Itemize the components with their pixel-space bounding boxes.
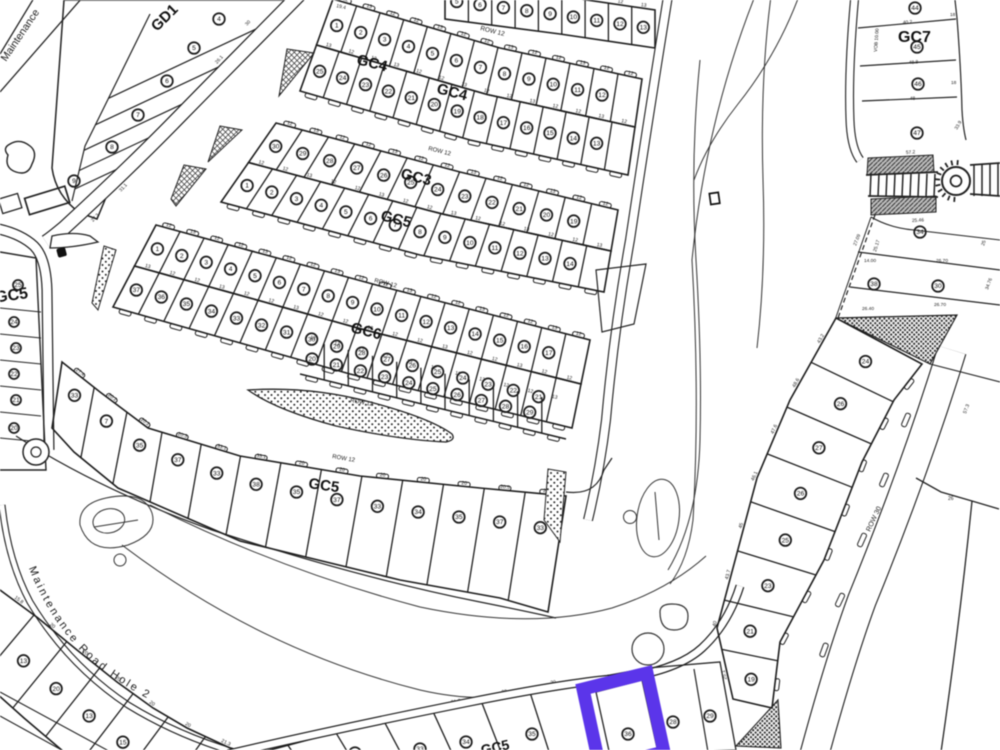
svg-text:1: 1 <box>156 246 160 253</box>
svg-text:2: 2 <box>270 189 274 196</box>
svg-text:48: 48 <box>910 96 916 102</box>
svg-text:5: 5 <box>344 209 348 216</box>
svg-text:24: 24 <box>10 319 18 326</box>
svg-text:20: 20 <box>52 686 60 693</box>
svg-text:23: 23 <box>12 345 20 352</box>
svg-text:19: 19 <box>570 218 578 225</box>
svg-text:27: 27 <box>478 398 486 405</box>
svg-text:23: 23 <box>461 193 469 200</box>
svg-text:31: 31 <box>283 329 291 336</box>
svg-text:8: 8 <box>418 229 422 236</box>
svg-text:18: 18 <box>476 115 484 122</box>
svg-text:33: 33 <box>213 470 221 477</box>
svg-text:34: 34 <box>916 229 924 236</box>
svg-text:7: 7 <box>479 65 483 72</box>
svg-text:5: 5 <box>192 45 196 52</box>
svg-text:57.2: 57.2 <box>906 149 916 156</box>
svg-text:21: 21 <box>746 628 754 635</box>
svg-text:7: 7 <box>105 418 109 425</box>
svg-text:4: 4 <box>319 203 323 210</box>
svg-text:25: 25 <box>14 282 22 289</box>
svg-text:9: 9 <box>548 11 552 18</box>
svg-text:26: 26 <box>948 496 954 502</box>
svg-text:24: 24 <box>862 359 870 366</box>
svg-text:28: 28 <box>502 404 510 411</box>
svg-text:12: 12 <box>617 0 624 5</box>
svg-text:40.2: 40.2 <box>903 19 913 26</box>
svg-text:15: 15 <box>119 739 127 746</box>
svg-text:36: 36 <box>624 731 632 738</box>
svg-text:6: 6 <box>165 78 169 85</box>
svg-text:12: 12 <box>422 319 430 326</box>
svg-text:19: 19 <box>453 108 461 115</box>
svg-text:1: 1 <box>245 183 249 190</box>
svg-text:7: 7 <box>136 112 140 119</box>
svg-text:23: 23 <box>362 82 370 89</box>
svg-text:8: 8 <box>503 71 507 78</box>
svg-text:4: 4 <box>229 266 233 273</box>
svg-text:11: 11 <box>398 313 405 320</box>
svg-text:48.8: 48.8 <box>909 59 919 66</box>
svg-text:13: 13 <box>641 2 648 9</box>
svg-text:22: 22 <box>488 200 496 207</box>
svg-text:26: 26 <box>380 172 388 179</box>
svg-text:2: 2 <box>180 253 184 260</box>
svg-text:34: 34 <box>462 739 470 746</box>
svg-text:10: 10 <box>570 14 578 21</box>
svg-text:38: 38 <box>252 482 260 489</box>
svg-text:22: 22 <box>357 368 365 375</box>
svg-text:37: 37 <box>333 497 341 504</box>
svg-text:GC7: GC7 <box>898 29 931 46</box>
svg-text:4: 4 <box>407 44 411 51</box>
svg-text:9: 9 <box>527 76 531 83</box>
svg-text:6: 6 <box>369 216 373 223</box>
svg-text:27: 27 <box>815 445 823 452</box>
svg-text:14: 14 <box>471 331 479 338</box>
svg-text:11: 11 <box>491 245 498 252</box>
svg-text:12: 12 <box>516 250 524 257</box>
svg-text:26.70: 26.70 <box>934 302 946 308</box>
svg-text:1: 1 <box>335 23 339 30</box>
svg-text:44: 44 <box>911 5 919 12</box>
svg-text:32: 32 <box>258 322 266 329</box>
svg-text:35: 35 <box>183 301 191 308</box>
svg-text:16: 16 <box>520 344 528 351</box>
svg-text:16: 16 <box>523 125 531 132</box>
svg-text:20: 20 <box>420 476 426 483</box>
svg-text:11: 11 <box>593 18 600 25</box>
svg-text:23: 23 <box>381 374 389 381</box>
svg-text:20: 20 <box>308 356 316 363</box>
svg-text:29: 29 <box>299 151 307 158</box>
svg-text:25: 25 <box>316 69 324 76</box>
svg-text:15: 15 <box>546 130 554 137</box>
svg-text:20: 20 <box>461 480 467 487</box>
svg-text:14: 14 <box>570 135 578 142</box>
svg-text:8: 8 <box>326 293 330 300</box>
svg-text:30: 30 <box>934 283 942 290</box>
svg-text:15: 15 <box>496 337 504 344</box>
svg-text:26: 26 <box>797 491 805 498</box>
svg-text:33: 33 <box>233 315 241 322</box>
svg-text:2: 2 <box>359 30 363 37</box>
svg-text:38: 38 <box>870 281 878 288</box>
svg-text:35: 35 <box>528 731 536 738</box>
svg-text:20: 20 <box>431 102 439 109</box>
svg-text:7: 7 <box>502 5 506 12</box>
svg-text:21: 21 <box>12 397 20 404</box>
svg-text:26: 26 <box>837 401 845 408</box>
svg-text:10: 10 <box>466 240 474 247</box>
svg-text:28: 28 <box>669 719 677 726</box>
svg-text:3: 3 <box>295 196 299 203</box>
svg-text:33: 33 <box>416 746 424 750</box>
svg-text:37: 37 <box>133 287 141 294</box>
svg-text:3: 3 <box>383 37 387 44</box>
svg-text:24: 24 <box>405 380 413 387</box>
svg-text:24: 24 <box>339 75 347 82</box>
svg-text:22: 22 <box>510 388 518 395</box>
svg-text:13: 13 <box>541 256 549 263</box>
svg-text:12: 12 <box>616 21 624 28</box>
svg-text:23: 23 <box>764 583 772 590</box>
svg-text:37: 37 <box>496 519 504 526</box>
svg-text:23: 23 <box>484 381 492 388</box>
svg-text:28: 28 <box>326 158 334 165</box>
svg-text:9: 9 <box>351 300 355 307</box>
svg-text:18: 18 <box>950 12 956 18</box>
svg-text:5: 5 <box>431 51 435 58</box>
svg-text:25: 25 <box>429 386 437 393</box>
svg-text:3: 3 <box>204 260 208 267</box>
svg-text:21: 21 <box>333 362 341 369</box>
svg-text:14.00: 14.00 <box>864 258 876 264</box>
svg-text:13: 13 <box>85 713 93 720</box>
svg-text:5: 5 <box>253 273 257 280</box>
svg-text:29: 29 <box>706 713 714 720</box>
svg-text:6: 6 <box>455 58 459 65</box>
svg-text:13: 13 <box>447 325 455 332</box>
svg-text:10: 10 <box>373 306 381 313</box>
svg-text:35: 35 <box>455 514 463 521</box>
svg-text:34: 34 <box>208 308 216 315</box>
svg-text:5: 5 <box>455 0 459 6</box>
svg-text:21: 21 <box>408 95 416 102</box>
svg-text:6: 6 <box>278 280 282 287</box>
svg-text:11: 11 <box>574 87 581 94</box>
svg-text:13: 13 <box>593 141 601 148</box>
svg-text:47: 47 <box>913 130 921 137</box>
svg-text:13: 13 <box>640 25 648 32</box>
svg-text:33: 33 <box>71 393 79 400</box>
svg-text:35: 35 <box>293 489 301 496</box>
svg-text:29: 29 <box>526 409 534 416</box>
svg-text:26: 26 <box>453 392 461 399</box>
svg-text:7: 7 <box>302 286 306 293</box>
svg-text:20.5: 20.5 <box>500 484 510 491</box>
svg-text:30: 30 <box>272 144 280 151</box>
svg-text:22: 22 <box>10 371 18 378</box>
svg-text:20: 20 <box>10 425 18 432</box>
svg-text:20: 20 <box>543 212 551 219</box>
svg-text:21: 21 <box>515 206 523 213</box>
svg-text:13: 13 <box>20 658 28 665</box>
svg-text:22: 22 <box>385 88 393 95</box>
svg-text:14: 14 <box>566 261 574 268</box>
svg-text:9: 9 <box>443 235 447 242</box>
svg-text:36: 36 <box>158 294 166 301</box>
svg-text:26.70: 26.70 <box>936 258 948 264</box>
svg-text:17: 17 <box>545 350 553 357</box>
svg-text:25.46: 25.46 <box>912 217 925 224</box>
svg-text:24: 24 <box>434 187 442 194</box>
svg-text:6: 6 <box>478 2 482 9</box>
svg-text:18: 18 <box>951 80 957 86</box>
svg-text:27: 27 <box>353 165 361 172</box>
svg-text:4: 4 <box>217 16 221 23</box>
svg-text:26.40: 26.40 <box>862 306 874 312</box>
svg-text:46: 46 <box>914 81 922 88</box>
svg-text:8: 8 <box>525 8 529 15</box>
svg-text:25: 25 <box>782 537 790 544</box>
svg-text:35: 35 <box>136 442 144 449</box>
svg-text:10: 10 <box>549 82 557 89</box>
svg-text:20: 20 <box>380 472 386 479</box>
svg-text:33: 33 <box>374 504 382 511</box>
svg-text:8: 8 <box>110 144 114 151</box>
svg-text:24: 24 <box>459 375 467 382</box>
svg-text:17: 17 <box>500 120 508 127</box>
svg-text:34: 34 <box>414 509 422 516</box>
svg-text:33: 33 <box>537 525 545 532</box>
svg-text:9: 9 <box>72 178 76 185</box>
svg-text:37: 37 <box>174 457 182 464</box>
svg-text:19: 19 <box>747 677 755 684</box>
svg-text:12: 12 <box>598 92 606 99</box>
